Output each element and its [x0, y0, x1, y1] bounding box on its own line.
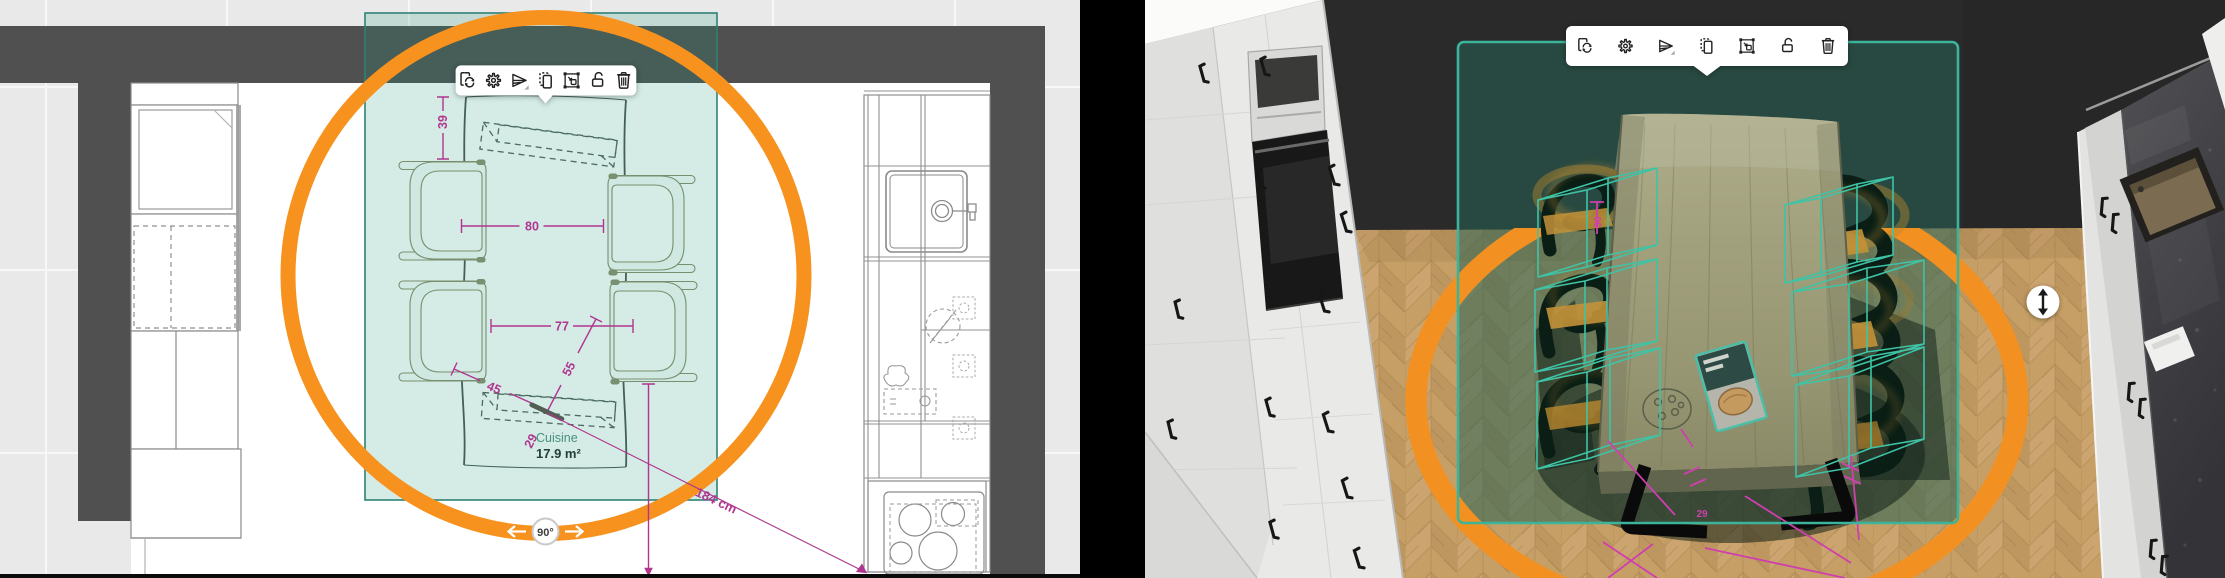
svg-text:Cuisine: Cuisine: [536, 431, 578, 445]
svg-text:77: 77: [555, 320, 569, 334]
svg-text:29: 29: [1696, 509, 1708, 520]
svg-text:17.9 m²: 17.9 m²: [536, 446, 581, 461]
svg-text:80: 80: [525, 220, 539, 234]
svg-text:90°: 90°: [537, 527, 554, 539]
svg-text:39: 39: [436, 115, 450, 129]
svg-text:30: 30: [1593, 216, 1604, 228]
